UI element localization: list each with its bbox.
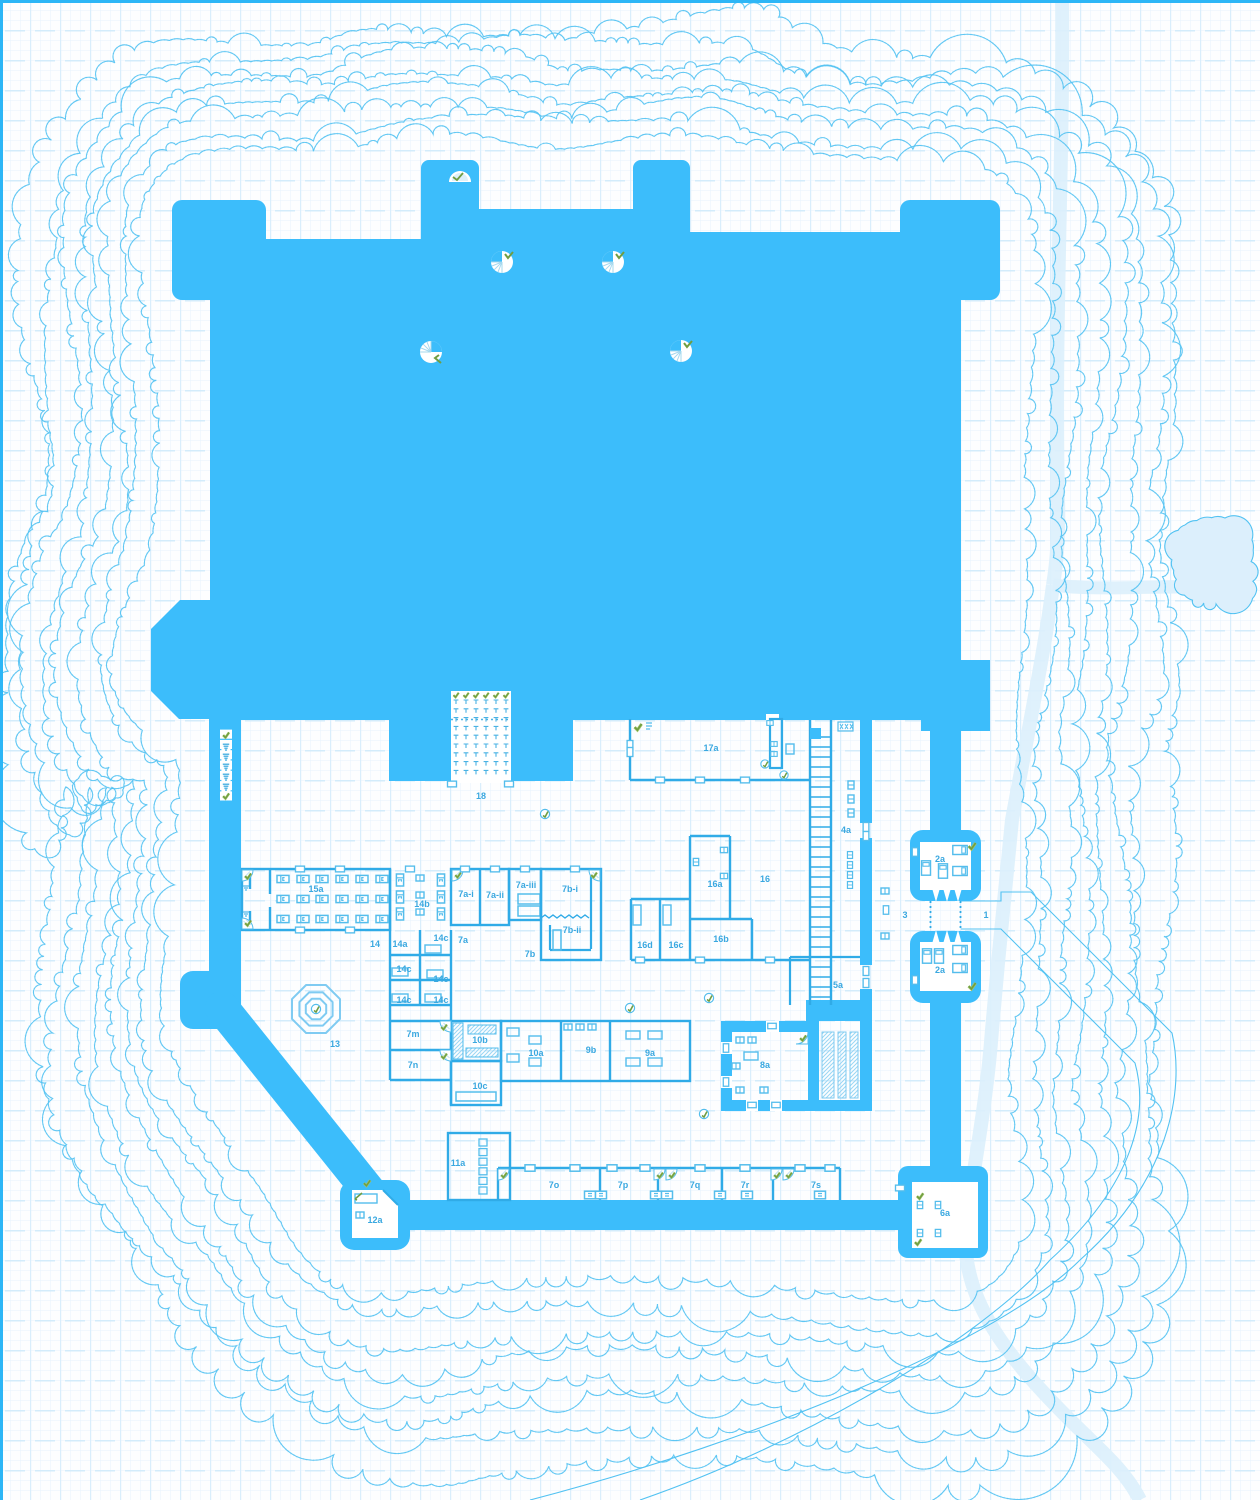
svg-text:14: 14 bbox=[370, 939, 380, 949]
svg-text:15a: 15a bbox=[308, 884, 324, 894]
svg-text:10c: 10c bbox=[472, 1081, 487, 1091]
svg-text:17a: 17a bbox=[703, 743, 719, 753]
svg-text:14c: 14c bbox=[433, 974, 448, 984]
svg-text:7s: 7s bbox=[811, 1180, 821, 1190]
svg-text:14c: 14c bbox=[433, 995, 448, 1005]
svg-text:7a: 7a bbox=[458, 935, 469, 945]
svg-text:1: 1 bbox=[983, 910, 988, 920]
svg-text:7q: 7q bbox=[690, 1180, 701, 1190]
svg-text:16a: 16a bbox=[707, 879, 723, 889]
svg-text:16: 16 bbox=[760, 874, 770, 884]
svg-text:7a-ii: 7a-ii bbox=[486, 890, 504, 900]
svg-text:7b-i: 7b-i bbox=[562, 884, 578, 894]
svg-text:6a: 6a bbox=[940, 1208, 951, 1218]
svg-text:9b: 9b bbox=[586, 1045, 597, 1055]
svg-text:8a: 8a bbox=[760, 1060, 771, 1070]
svg-text:7n: 7n bbox=[408, 1060, 419, 1070]
svg-text:10a: 10a bbox=[528, 1048, 544, 1058]
svg-text:16d: 16d bbox=[637, 940, 653, 950]
svg-text:7b-ii: 7b-ii bbox=[563, 925, 582, 935]
svg-text:2a: 2a bbox=[935, 854, 946, 864]
svg-text:11a: 11a bbox=[451, 1158, 467, 1168]
svg-text:7m: 7m bbox=[406, 1029, 419, 1039]
svg-text:16b: 16b bbox=[713, 934, 729, 944]
svg-text:16c: 16c bbox=[668, 940, 683, 950]
svg-text:7b: 7b bbox=[525, 949, 536, 959]
svg-text:14c: 14c bbox=[433, 933, 448, 943]
svg-text:18: 18 bbox=[476, 791, 486, 801]
svg-text:14c: 14c bbox=[396, 995, 411, 1005]
svg-text:9a: 9a bbox=[645, 1048, 656, 1058]
svg-text:5a: 5a bbox=[833, 980, 844, 990]
svg-text:7r: 7r bbox=[741, 1180, 750, 1190]
svg-text:3: 3 bbox=[902, 910, 907, 920]
svg-text:7a-i: 7a-i bbox=[458, 889, 474, 899]
svg-text:7a-iii: 7a-iii bbox=[516, 880, 537, 890]
svg-text:12a: 12a bbox=[367, 1215, 383, 1225]
svg-text:7o: 7o bbox=[549, 1180, 560, 1190]
svg-text:13: 13 bbox=[330, 1039, 340, 1049]
svg-text:10b: 10b bbox=[472, 1035, 488, 1045]
svg-text:2a: 2a bbox=[935, 965, 946, 975]
svg-text:14c: 14c bbox=[396, 964, 411, 974]
svg-text:4a: 4a bbox=[841, 825, 852, 835]
svg-text:14b: 14b bbox=[414, 899, 430, 909]
svg-text:14a: 14a bbox=[392, 939, 408, 949]
svg-text:7p: 7p bbox=[618, 1180, 629, 1190]
